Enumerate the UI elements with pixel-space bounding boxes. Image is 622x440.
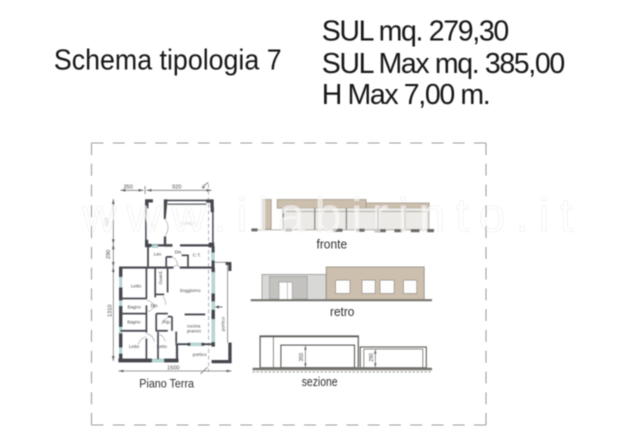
svg-text:pranzo: pranzo [187, 329, 201, 334]
svg-text:Bagno: Bagno [127, 320, 141, 325]
svg-text:Rip.: Rip. [163, 320, 171, 325]
svg-text:sezione: sezione [302, 374, 338, 389]
svg-text:Letto: Letto [129, 344, 140, 349]
svg-text:Soggiorno: Soggiorno [180, 288, 201, 293]
svg-text:290: 290 [106, 250, 112, 259]
svg-text:350: 350 [299, 353, 305, 362]
svg-text:www.ilabirinto.it: www.ilabirinto.it [81, 190, 583, 243]
svg-text:Piano Terra: Piano Terra [139, 376, 194, 390]
svg-text:portico: portico [193, 352, 207, 357]
svg-text:Letto: Letto [131, 284, 142, 289]
svg-text:290: 290 [369, 353, 375, 362]
svg-text:H Max 7,00 m.: H Max 7,00 m. [322, 79, 491, 111]
svg-text:C.T.: C.T. [193, 252, 201, 257]
svg-text:SUL Max mq. 385,00: SUL Max mq. 385,00 [322, 48, 566, 80]
svg-text:Letto: Letto [157, 344, 168, 349]
svg-text:Dis.: Dis. [151, 303, 159, 308]
svg-text:SUL mq. 279,30: SUL mq. 279,30 [322, 15, 510, 47]
svg-text:Lav.: Lav. [154, 252, 162, 257]
svg-text:1310: 1310 [108, 305, 114, 317]
svg-text:Guard.: Guard. [158, 270, 163, 284]
svg-text:Schema tipologia 7: Schema tipologia 7 [54, 45, 282, 77]
svg-text:portico: portico [221, 317, 227, 332]
svg-text:Dis.: Dis. [175, 249, 183, 254]
svg-text:1500: 1500 [167, 365, 179, 371]
svg-text:retro: retro [330, 304, 354, 319]
svg-text:Bagno: Bagno [128, 305, 142, 310]
